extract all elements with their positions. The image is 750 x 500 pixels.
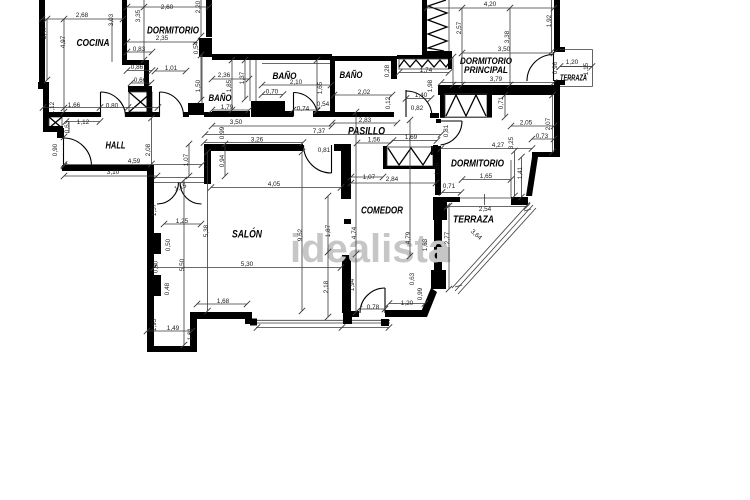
- svg-text:0,80: 0,80: [106, 103, 119, 110]
- svg-text:1,65: 1,65: [480, 173, 493, 180]
- svg-text:DORMITORIO: DORMITORIO: [451, 158, 504, 170]
- svg-text:0,81: 0,81: [443, 124, 450, 137]
- svg-text:7,37: 7,37: [313, 128, 326, 135]
- svg-text:0,28: 0,28: [384, 64, 391, 77]
- svg-text:0,94: 0,94: [219, 154, 226, 167]
- svg-text:2,60: 2,60: [161, 4, 174, 11]
- svg-text:0,71: 0,71: [498, 96, 505, 109]
- svg-text:0,54: 0,54: [317, 101, 330, 108]
- svg-text:2,36: 2,36: [218, 72, 231, 79]
- svg-text:COMEDOR: COMEDOR: [361, 205, 403, 217]
- svg-text:COCINA: COCINA: [77, 37, 110, 49]
- svg-text:2,77: 2,77: [444, 231, 451, 244]
- svg-text:0,83: 0,83: [133, 46, 146, 53]
- svg-text:BAÑO: BAÑO: [209, 93, 232, 104]
- svg-text:5,50: 5,50: [179, 258, 186, 271]
- svg-text:1,93: 1,93: [151, 318, 158, 331]
- svg-text:1,40: 1,40: [415, 92, 428, 99]
- svg-text:0,90: 0,90: [153, 260, 160, 273]
- svg-text:1,65: 1,65: [317, 81, 324, 94]
- svg-text:TERRAZA: TERRAZA: [453, 214, 494, 226]
- svg-text:0,71: 0,71: [443, 183, 456, 190]
- svg-text:1,94: 1,94: [349, 278, 356, 291]
- svg-text:0,50: 0,50: [165, 238, 172, 251]
- svg-text:2,35: 2,35: [156, 35, 169, 42]
- svg-text:0,90: 0,90: [52, 143, 59, 156]
- svg-text:0,99: 0,99: [417, 287, 424, 300]
- svg-text:0,74: 0,74: [297, 106, 310, 113]
- svg-text:0,12: 0,12: [385, 96, 392, 109]
- svg-text:0,63: 0,63: [409, 272, 416, 285]
- svg-text:3,10: 3,10: [107, 169, 120, 176]
- svg-text:2,10: 2,10: [290, 79, 303, 86]
- svg-text:2,07: 2,07: [545, 117, 552, 130]
- svg-text:1,20: 1,20: [401, 300, 414, 307]
- svg-text:1,63: 1,63: [422, 238, 429, 251]
- svg-text:4,59: 4,59: [128, 158, 141, 165]
- svg-text:1,98: 1,98: [427, 79, 434, 92]
- svg-text:1,50: 1,50: [195, 79, 202, 92]
- svg-text:0,66: 0,66: [134, 77, 147, 84]
- svg-text:2,54: 2,54: [479, 206, 492, 213]
- svg-text:0,81: 0,81: [318, 147, 331, 154]
- svg-text:1,66: 1,66: [68, 102, 81, 109]
- svg-text:3,35: 3,35: [135, 9, 142, 22]
- svg-text:4,79: 4,79: [405, 231, 412, 244]
- svg-text:3,79: 3,79: [490, 76, 503, 83]
- svg-text:4,05: 4,05: [268, 181, 281, 188]
- svg-text:4,20: 4,20: [484, 1, 497, 8]
- svg-text:0,63: 0,63: [64, 120, 71, 133]
- svg-text:2,18: 2,18: [323, 280, 330, 293]
- svg-text:1,12: 1,12: [77, 119, 90, 126]
- svg-text:1,07: 1,07: [363, 174, 376, 181]
- svg-text:0,86: 0,86: [131, 64, 144, 71]
- svg-text:1,01: 1,01: [187, 327, 194, 340]
- svg-text:1,68: 1,68: [217, 298, 230, 305]
- svg-text:1,92: 1,92: [546, 14, 553, 27]
- svg-text:9,62: 9,62: [297, 228, 304, 241]
- svg-text:1,20: 1,20: [566, 59, 579, 66]
- svg-text:3,50: 3,50: [230, 119, 243, 126]
- svg-text:2,20: 2,20: [195, 0, 202, 13]
- svg-text:0,73: 0,73: [536, 133, 549, 140]
- svg-text:1,74: 1,74: [420, 67, 433, 74]
- svg-text:0,82: 0,82: [411, 105, 424, 112]
- svg-text:2,83: 2,83: [359, 117, 372, 124]
- svg-text:0,99: 0,99: [219, 126, 226, 139]
- svg-text:1,69: 1,69: [405, 134, 418, 141]
- svg-text:1,49: 1,49: [167, 325, 180, 332]
- svg-text:1,07: 1,07: [183, 153, 190, 166]
- svg-text:0,70: 0,70: [266, 89, 279, 96]
- svg-text:2,02: 2,02: [358, 89, 371, 96]
- svg-text:2,84: 2,84: [386, 176, 399, 183]
- svg-text:2,05: 2,05: [520, 120, 533, 127]
- svg-text:1,79: 1,79: [221, 104, 234, 111]
- svg-text:0,48: 0,48: [164, 282, 171, 295]
- svg-text:0,78: 0,78: [367, 304, 380, 311]
- svg-text:4,27: 4,27: [492, 142, 505, 149]
- svg-text:4,74: 4,74: [351, 226, 358, 239]
- svg-text:1,57: 1,57: [151, 203, 158, 216]
- svg-text:1,41: 1,41: [517, 166, 524, 179]
- svg-text:1,12: 1,12: [49, 101, 56, 114]
- svg-text:1,58: 1,58: [434, 162, 441, 175]
- svg-text:BAÑO: BAÑO: [340, 70, 363, 81]
- svg-text:3,26: 3,26: [251, 137, 264, 144]
- svg-text:1,15: 1,15: [583, 62, 590, 75]
- svg-text:1,56: 1,56: [368, 137, 381, 144]
- svg-text:SALÓN: SALÓN: [232, 228, 263, 241]
- svg-text:3,25: 3,25: [508, 136, 515, 149]
- svg-text:1,87: 1,87: [325, 224, 332, 237]
- svg-text:1,25: 1,25: [176, 218, 189, 225]
- svg-text:2,08: 2,08: [145, 143, 152, 156]
- svg-text:3,50: 3,50: [498, 46, 511, 53]
- svg-text:1,85: 1,85: [226, 79, 233, 92]
- svg-text:3,38: 3,38: [504, 30, 511, 43]
- svg-text:5,38: 5,38: [203, 224, 210, 237]
- svg-text:HALL: HALL: [106, 140, 126, 152]
- svg-text:3,03: 3,03: [108, 13, 115, 26]
- svg-text:4,97: 4,97: [60, 35, 67, 48]
- svg-text:0,54: 0,54: [193, 41, 200, 54]
- svg-text:1,01: 1,01: [165, 65, 178, 72]
- svg-text:3,47: 3,47: [41, 26, 48, 39]
- svg-text:0,96: 0,96: [552, 61, 559, 74]
- svg-text:2,68: 2,68: [76, 12, 89, 19]
- svg-text:PRINCIPAL: PRINCIPAL: [464, 65, 508, 76]
- svg-text:5,30: 5,30: [241, 261, 254, 268]
- svg-text:2,57: 2,57: [456, 21, 463, 34]
- svg-text:1,37: 1,37: [239, 71, 246, 84]
